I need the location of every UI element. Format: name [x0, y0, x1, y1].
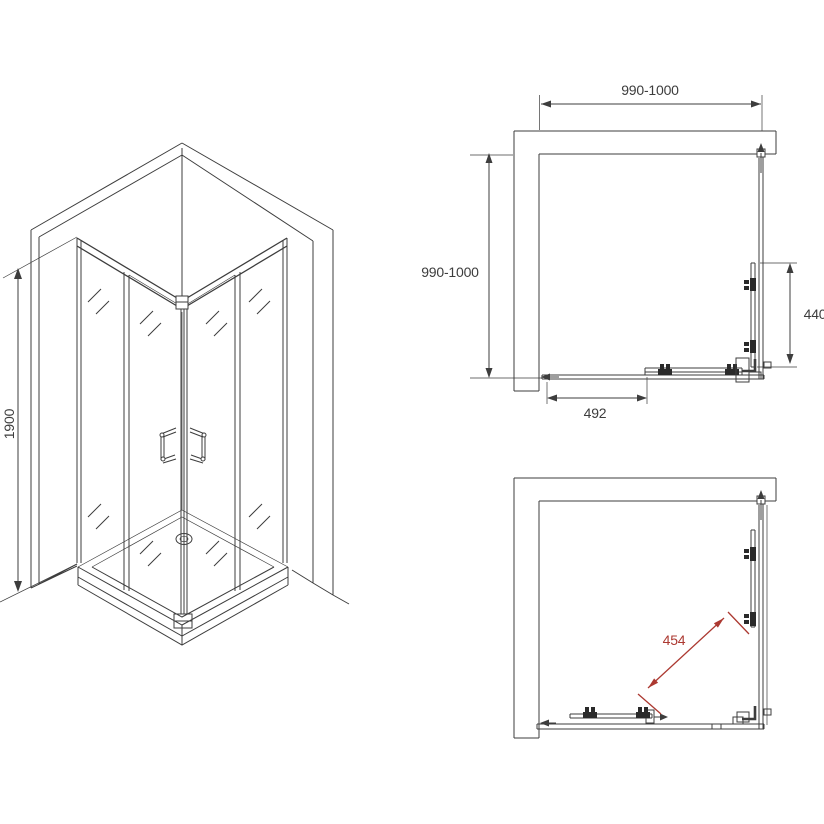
corner-hardware	[712, 706, 771, 729]
dimension-door-opening	[547, 377, 647, 404]
door-handles	[160, 428, 206, 463]
door-rollers	[658, 278, 756, 375]
corner-hardware	[736, 358, 771, 382]
isometric-view	[0, 143, 349, 645]
depth-dimension-label: 990-1000	[390, 264, 510, 280]
glass-shine-marks	[88, 289, 270, 566]
enclosure-top-plan	[541, 143, 771, 382]
width-dimension-label: 990-1000	[590, 82, 710, 98]
drawing-svg	[0, 0, 824, 824]
wall-fit-arrow	[540, 720, 549, 727]
height-dimension-label: 1900	[1, 394, 17, 454]
walls-top-plan	[514, 131, 776, 391]
door-opening-dimension-label: 492	[555, 405, 635, 421]
wall-fit-arrow	[758, 143, 765, 152]
plan-bottom-view	[514, 478, 776, 738]
plan-top-view	[470, 95, 797, 404]
walls-bottom-plan	[514, 478, 776, 738]
technical-drawing-page: 1900 990-1000 990-1000 440 492 454	[0, 0, 824, 824]
shower-tray	[78, 510, 288, 645]
dimension-door-diagonal	[638, 612, 749, 714]
side-panel-dimension-label: 440	[785, 306, 824, 322]
wall-fit-arrow	[758, 490, 765, 499]
door-diagonal-dimension-label: 454	[634, 632, 714, 648]
enclosure-bottom-plan	[537, 490, 771, 729]
door-slide-arrow	[660, 714, 668, 721]
dimension-width	[540, 95, 763, 131]
